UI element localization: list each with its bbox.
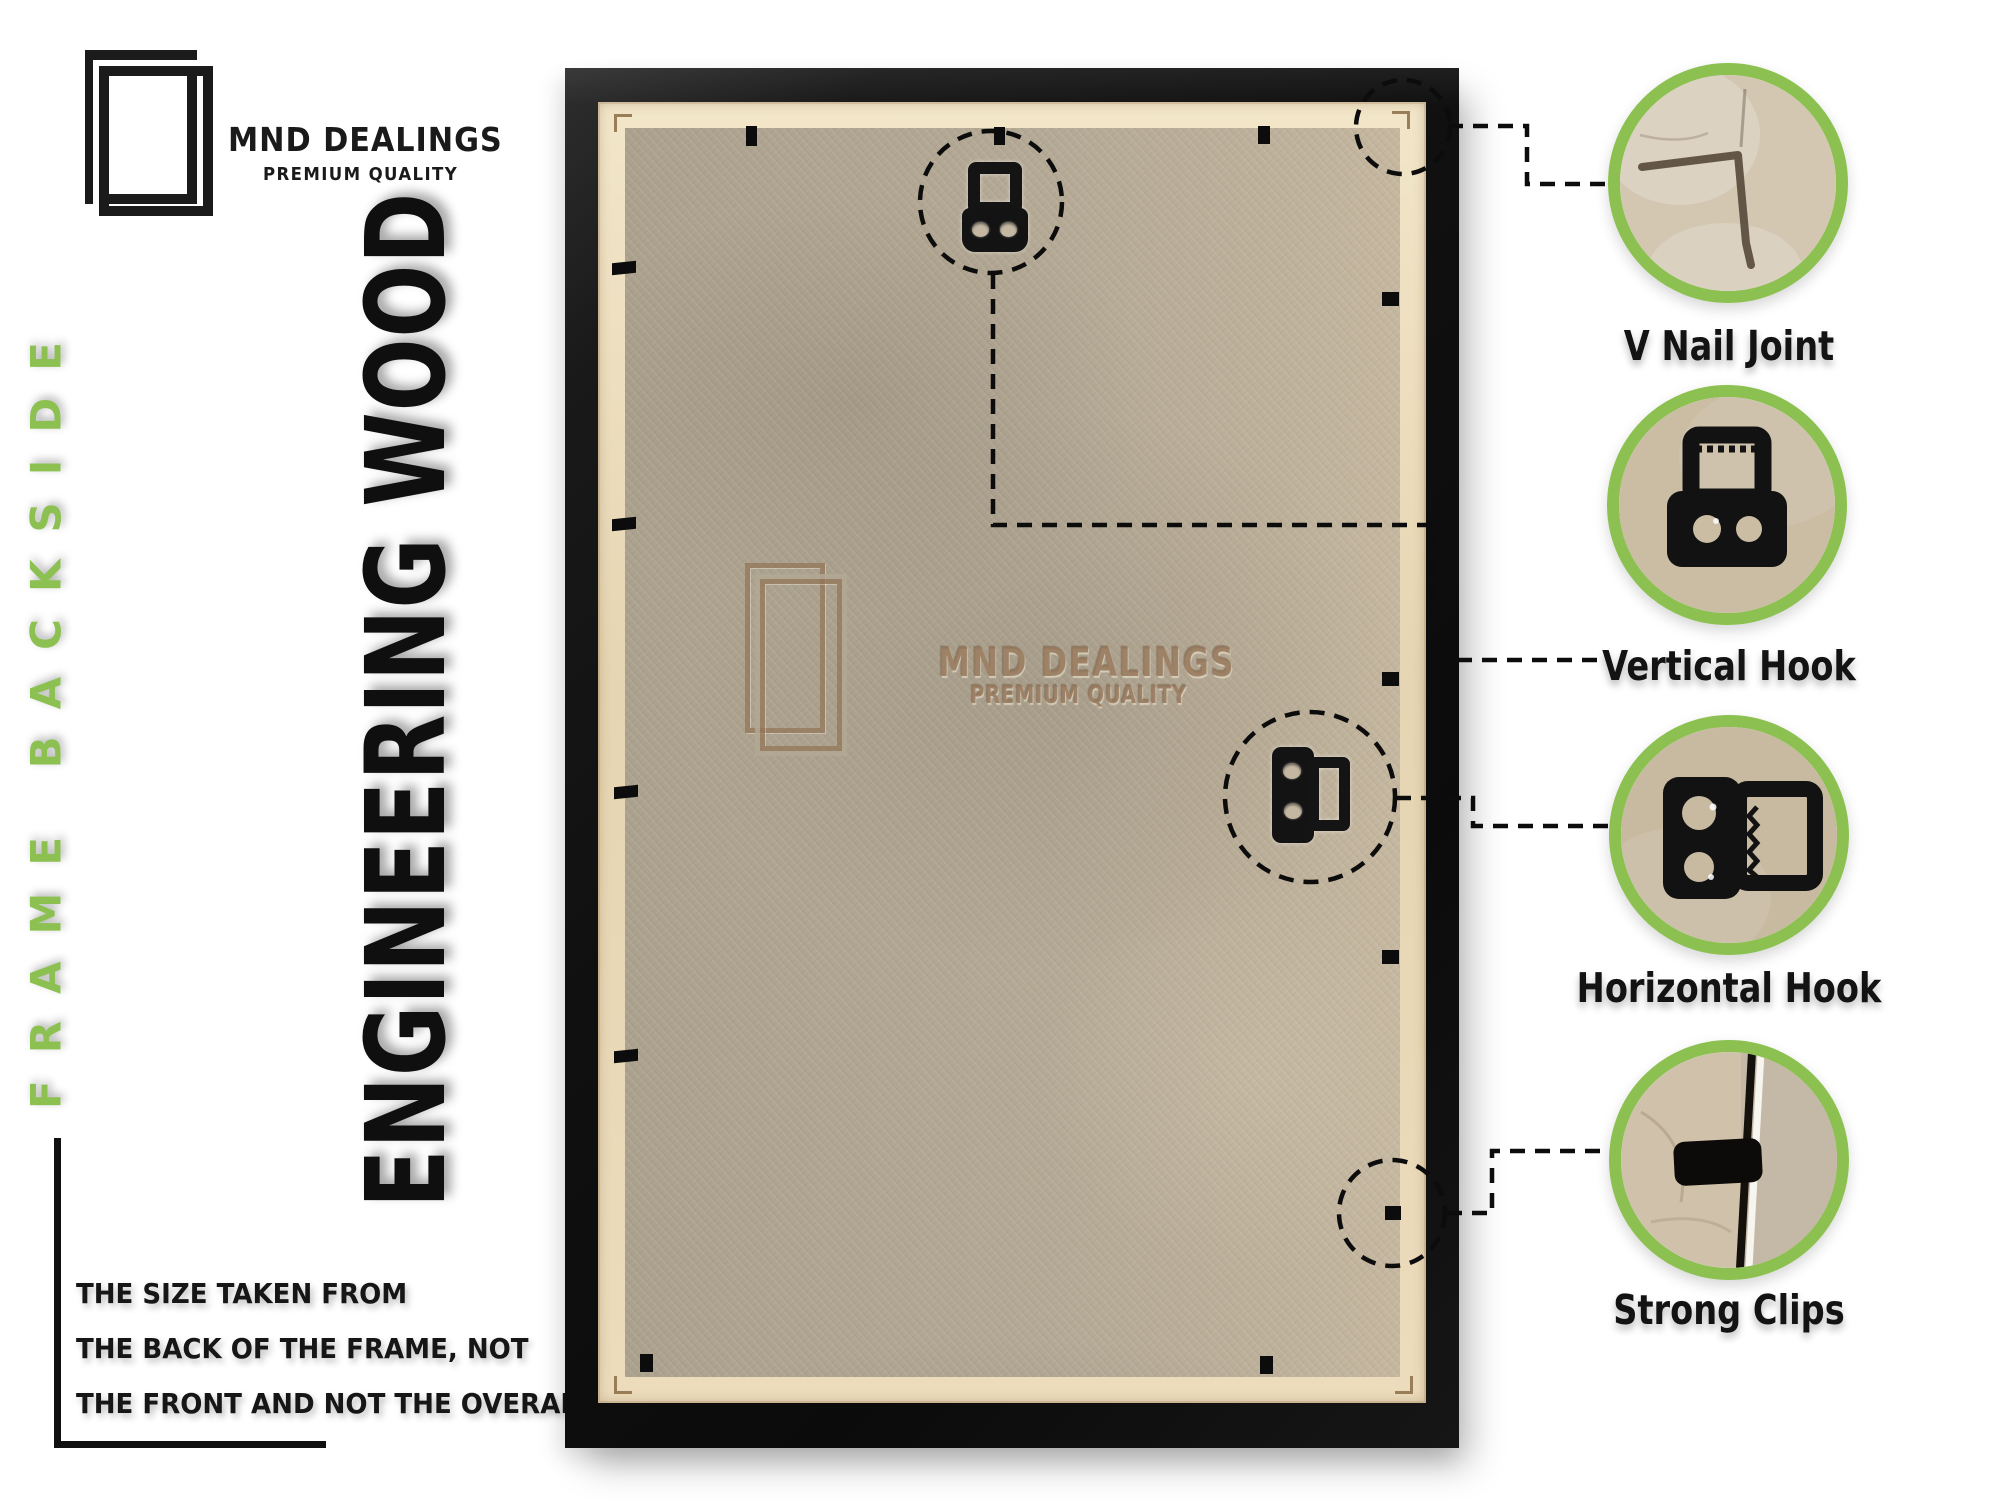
clip xyxy=(614,1049,638,1064)
corner-joint-mark xyxy=(1392,111,1410,129)
horizontal-hook-icon xyxy=(1621,727,1837,943)
brand-name: MND DEALINGS xyxy=(228,120,503,159)
clip xyxy=(1258,126,1270,144)
clip xyxy=(614,785,638,800)
callout-label-v-nail-joint: V Nail Joint xyxy=(1563,322,1894,370)
vertical-hook-hardware xyxy=(962,162,1028,252)
callout-photo-v-nail-joint xyxy=(1608,63,1848,303)
callout-label-strong-clips: Strong Clips xyxy=(1563,1286,1894,1334)
leader-line-strong-clips xyxy=(1447,1151,1612,1213)
hook-loop xyxy=(1308,757,1350,831)
engineering-wood-label: ENGINEERING WOOD xyxy=(342,192,470,1208)
callout-photo-vertical-hook xyxy=(1607,385,1847,625)
brand-tagline: PREMIUM QUALITY xyxy=(263,164,458,185)
strong-clip-icon xyxy=(1621,1052,1837,1268)
brand-frames-icon xyxy=(85,50,225,215)
horizontal-hook-hardware xyxy=(1272,747,1352,847)
hook-hole xyxy=(1284,803,1302,819)
callout-label-horizontal-hook: Horizontal Hook xyxy=(1563,964,1894,1012)
hook-hole xyxy=(1283,763,1301,779)
vertical-hook-icon xyxy=(1619,397,1835,613)
clip xyxy=(640,1354,653,1372)
corner-joint-mark xyxy=(614,1376,632,1394)
clip xyxy=(994,127,1005,145)
clip xyxy=(1260,1356,1273,1374)
hook-hole xyxy=(972,222,989,237)
clip xyxy=(746,126,757,146)
hook-plate xyxy=(962,208,1028,252)
watermark-logo-icon xyxy=(760,579,842,751)
leader-line-v-nail-joint xyxy=(1448,126,1612,184)
clip xyxy=(612,517,636,532)
frame-outline-front-icon xyxy=(99,66,213,216)
clip xyxy=(612,261,636,276)
watermark-brand-tagline: PREMIUM QUALITY xyxy=(970,680,1187,709)
product-infographic: MND DEALINGS PREMIUM QUALITY FRAME BACKS… xyxy=(0,0,2000,1500)
clip xyxy=(1382,950,1399,964)
v-nail-joint-icon xyxy=(1620,75,1836,291)
frame-backside-label: FRAME BACKSIDE xyxy=(22,315,71,1109)
corner-joint-mark xyxy=(1395,1376,1413,1394)
clip xyxy=(1385,1206,1401,1220)
clip xyxy=(1382,292,1399,306)
clip xyxy=(1382,672,1399,686)
hook-loop xyxy=(968,162,1022,214)
callout-label-vertical-hook: Vertical Hook xyxy=(1563,642,1894,690)
callout-photo-horizontal-hook xyxy=(1609,715,1849,955)
hook-hole xyxy=(1000,222,1017,237)
callout-photo-strong-clips xyxy=(1609,1040,1849,1280)
frame-backside-photo: MND DEALINGS PREMIUM QUALITY xyxy=(565,68,1459,1448)
